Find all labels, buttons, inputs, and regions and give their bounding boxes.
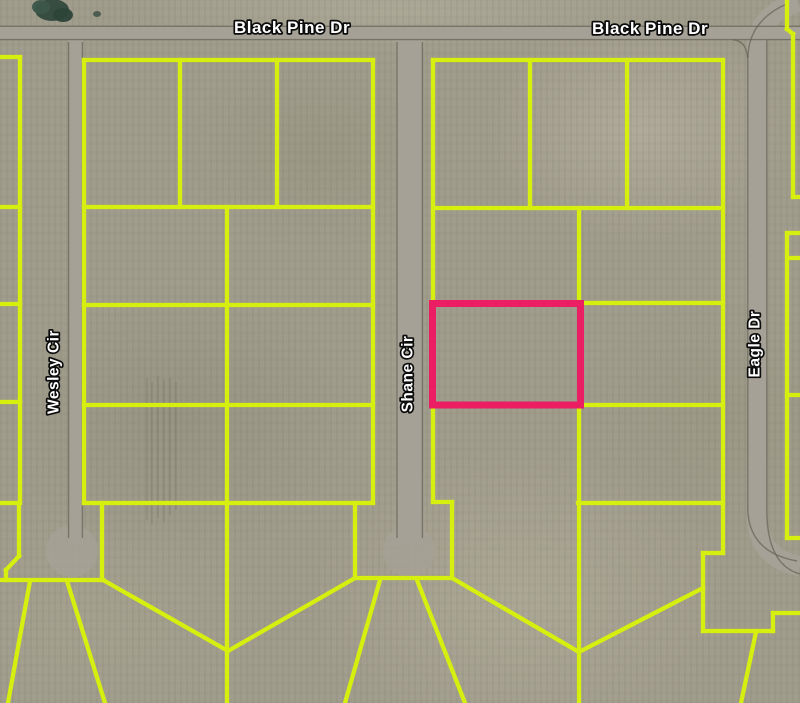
black-pine-dr-label-east: Black Pine Dr (592, 19, 708, 38)
map-canvas[interactable]: Black Pine DrBlack Pine DrWesley CirShan… (0, 0, 800, 703)
road-surface (68, 40, 83, 544)
parcel-boundary (452, 578, 579, 652)
parcel-boundary (103, 580, 228, 651)
parcel-map-svg: Black Pine DrBlack Pine DrWesley CirShan… (0, 0, 800, 703)
parcel-boundary (579, 588, 703, 652)
tree-clump (93, 11, 101, 17)
parcel-boundary (228, 578, 355, 651)
tree-clump (53, 8, 73, 22)
culdesac-bulb (46, 525, 98, 577)
parcel-boundary (345, 580, 380, 703)
wesley-cir-label: Wesley Cir (46, 330, 63, 414)
highlighted-parcel (433, 304, 581, 406)
black-pine-dr-label-west: Black Pine Dr (234, 18, 350, 37)
parcel-boundary (8, 581, 30, 703)
parcel-boundary (67, 581, 105, 703)
parcel-boundary (417, 580, 465, 703)
parcel-boundary (741, 632, 756, 703)
shane-cir-label: Shane Cir (400, 336, 417, 413)
eagle-dr-label: Eagle Dr (747, 311, 764, 378)
road-surface (396, 40, 423, 544)
culdesac-bulb (383, 525, 435, 577)
tree-clump (32, 0, 50, 14)
